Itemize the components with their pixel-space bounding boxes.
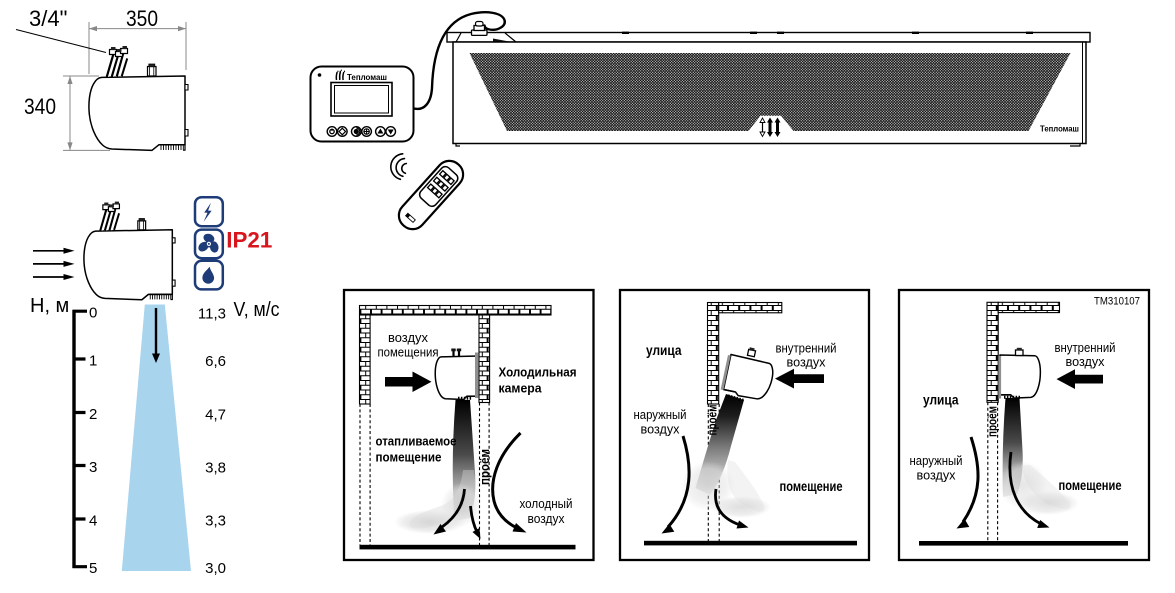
svg-text:11,3: 11,3 xyxy=(198,306,226,323)
svg-text:4: 4 xyxy=(89,512,97,529)
svg-text:воздух: воздух xyxy=(641,423,681,437)
svg-text:наружный: наружный xyxy=(910,454,963,468)
svg-text:0: 0 xyxy=(89,305,97,322)
svg-text:воздух: воздух xyxy=(787,356,827,370)
svg-text:помещение: помещение xyxy=(780,479,843,494)
svg-text:3,8: 3,8 xyxy=(205,460,226,477)
svg-text:3: 3 xyxy=(89,459,97,476)
svg-text:6,6: 6,6 xyxy=(205,353,226,370)
svg-text:проём: проём xyxy=(986,406,1000,437)
svg-text:внутренний: внутренний xyxy=(1055,341,1116,355)
svg-text:проём: проём xyxy=(478,449,492,485)
svg-text:3,3: 3,3 xyxy=(205,513,226,530)
svg-text:IP21: IP21 xyxy=(226,228,272,253)
svg-text:наружный: наружный xyxy=(634,408,687,422)
svg-text:ТМ310107: ТМ310107 xyxy=(1094,296,1140,308)
svg-text:5: 5 xyxy=(89,560,97,577)
svg-text:4,7: 4,7 xyxy=(205,407,226,424)
svg-text:улица: улица xyxy=(646,343,682,358)
svg-text:V, м/с: V, м/с xyxy=(234,299,280,321)
svg-text:3,0: 3,0 xyxy=(205,560,226,577)
svg-text:2: 2 xyxy=(89,406,97,423)
svg-text:1: 1 xyxy=(89,353,97,370)
svg-text:3/4": 3/4" xyxy=(29,6,67,31)
svg-text:воздух: воздух xyxy=(388,331,429,345)
svg-text:камера: камера xyxy=(499,381,543,396)
svg-text:проём: проём xyxy=(706,405,720,436)
svg-text:воздух: воздух xyxy=(1066,355,1106,369)
svg-text:холодный: холодный xyxy=(520,496,573,511)
svg-text:помещение: помещение xyxy=(1059,478,1122,493)
svg-text:Тепломаш: Тепломаш xyxy=(347,72,387,82)
svg-text:воздух: воздух xyxy=(528,511,565,526)
svg-text:Тепломаш: Тепломаш xyxy=(1040,124,1079,134)
svg-text:Н, м: Н, м xyxy=(30,295,69,317)
svg-text:внутренний: внутренний xyxy=(776,342,837,356)
svg-text:отапливаемое: отапливаемое xyxy=(376,434,457,449)
svg-text:помещение: помещение xyxy=(376,450,442,465)
svg-text:улица: улица xyxy=(923,393,959,408)
svg-text:340: 340 xyxy=(24,94,56,119)
svg-text:помещения: помещения xyxy=(378,346,439,360)
svg-text:воздух: воздух xyxy=(917,469,957,483)
svg-text:350: 350 xyxy=(126,6,158,31)
svg-text:Холодильная: Холодильная xyxy=(499,365,577,380)
